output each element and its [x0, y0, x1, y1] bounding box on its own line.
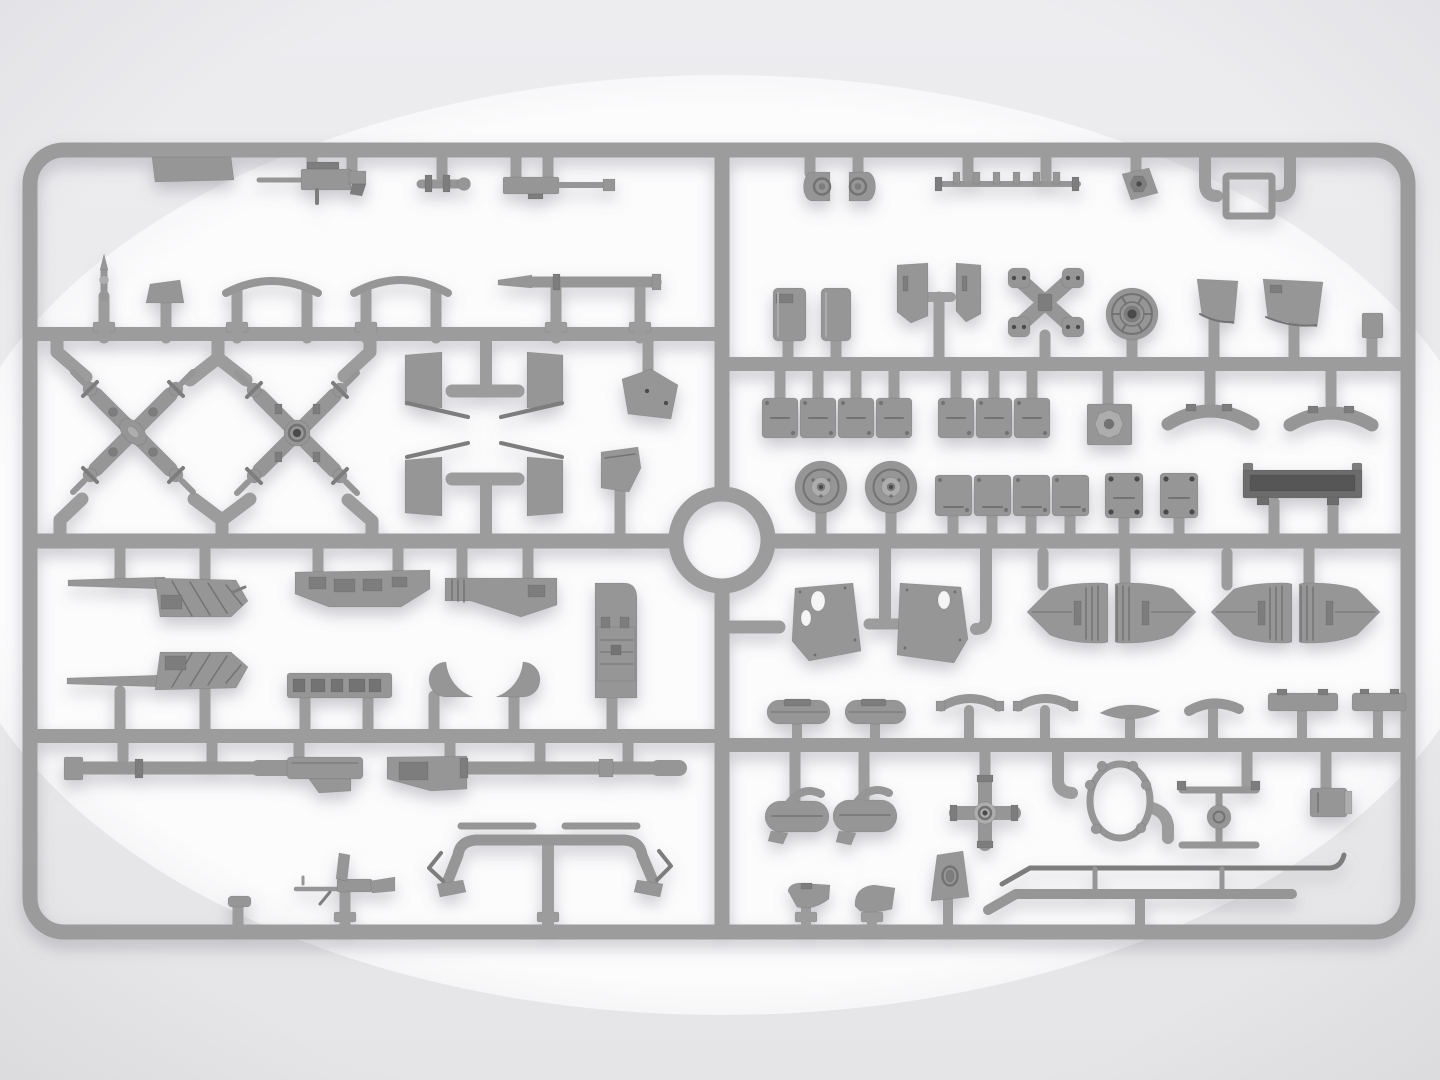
render-canvas: Gray plastic model-kit sprue with helico… — [0, 0, 1440, 1080]
vignette-overlay — [0, 0, 1440, 1080]
sprue-render: Gray plastic model-kit sprue with helico… — [0, 0, 1440, 1080]
